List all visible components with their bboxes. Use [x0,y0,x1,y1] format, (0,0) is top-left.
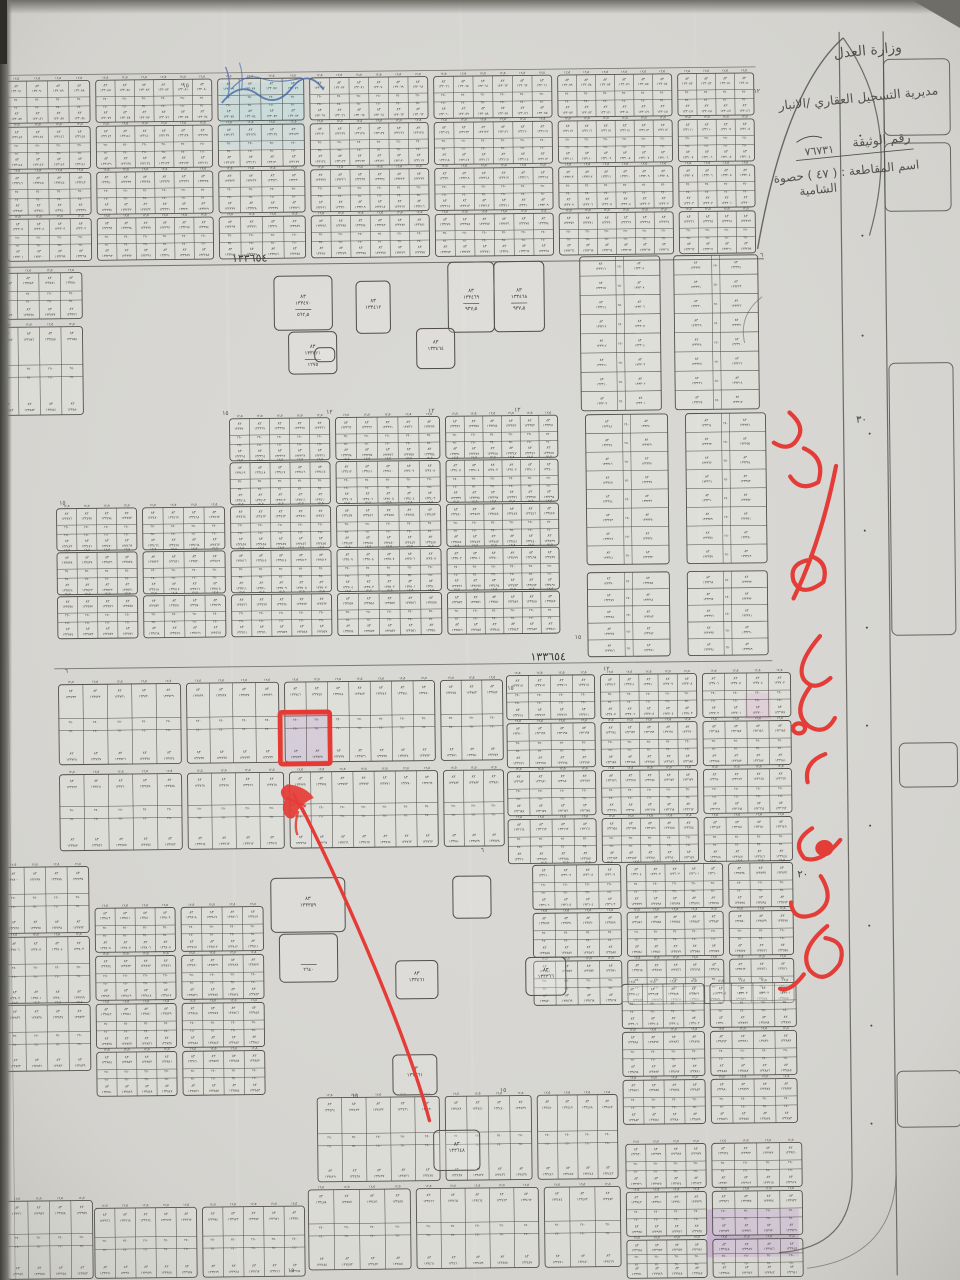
map-svg: ١٢٫٥٨٣١٣٣٠٩١٢٥٠٢٥٠٨٣١٣٣٠٨٧١٢٫٥٨٣١٣٣٠٩٠٢٥… [0,0,960,1280]
cadastral-map-photo: ١٢٫٥٨٣١٣٣٠٩١٢٥٠٢٥٠٨٣١٣٣٠٨٧١٢٫٥٨٣١٣٣٠٩٠٢٥… [0,0,960,1280]
photo-left-edge [0,0,12,1280]
photo-left-corner-dark [0,0,7,64]
photo-top-edge [0,0,960,14]
photo-vignette [0,0,960,1280]
